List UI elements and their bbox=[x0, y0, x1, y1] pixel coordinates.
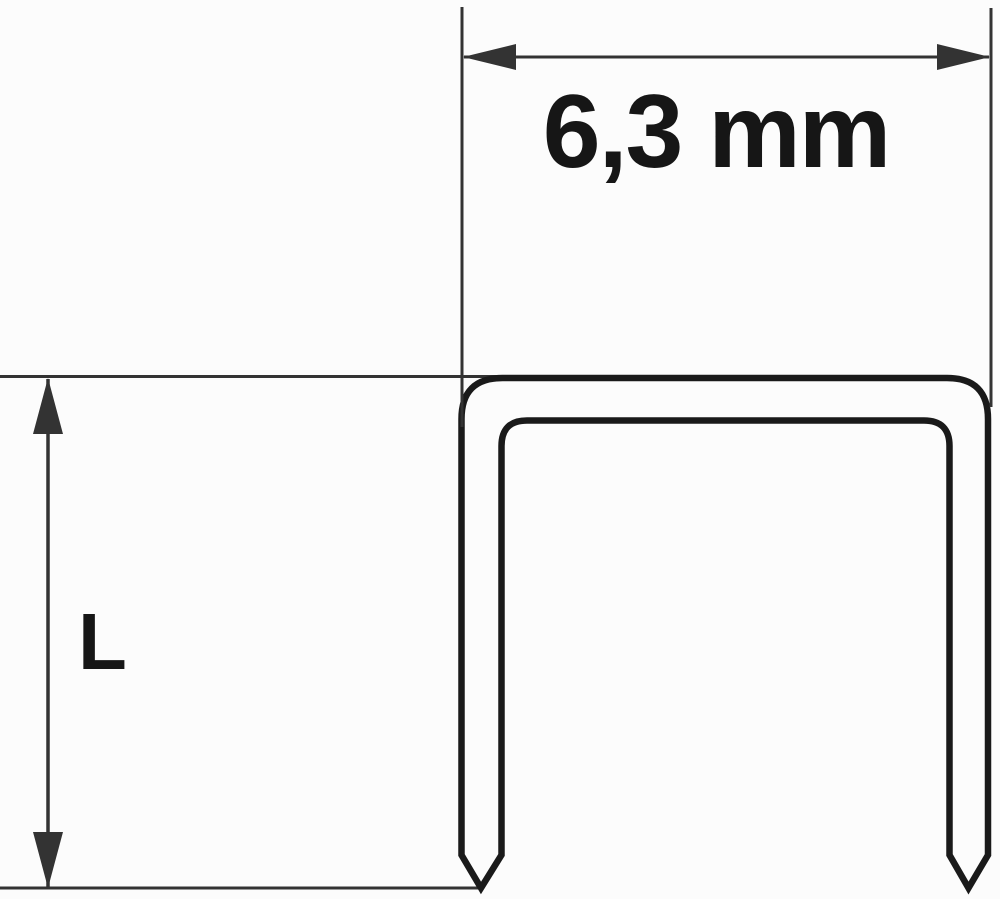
arrow-up-icon bbox=[33, 378, 63, 434]
length-dimension: L bbox=[33, 378, 127, 888]
drawing-canvas: 6,3 mm L bbox=[0, 0, 1000, 899]
arrow-right-icon bbox=[937, 44, 990, 70]
arrow-down-icon bbox=[33, 832, 63, 888]
length-dimension-label: L bbox=[78, 597, 127, 686]
arrow-left-icon bbox=[463, 44, 516, 70]
width-dimension-label: 6,3 mm bbox=[543, 74, 889, 190]
staple-technical-drawing: 6,3 mm L bbox=[0, 0, 1000, 899]
width-dimension: 6,3 mm bbox=[462, 7, 991, 427]
staple-outline bbox=[462, 378, 989, 888]
